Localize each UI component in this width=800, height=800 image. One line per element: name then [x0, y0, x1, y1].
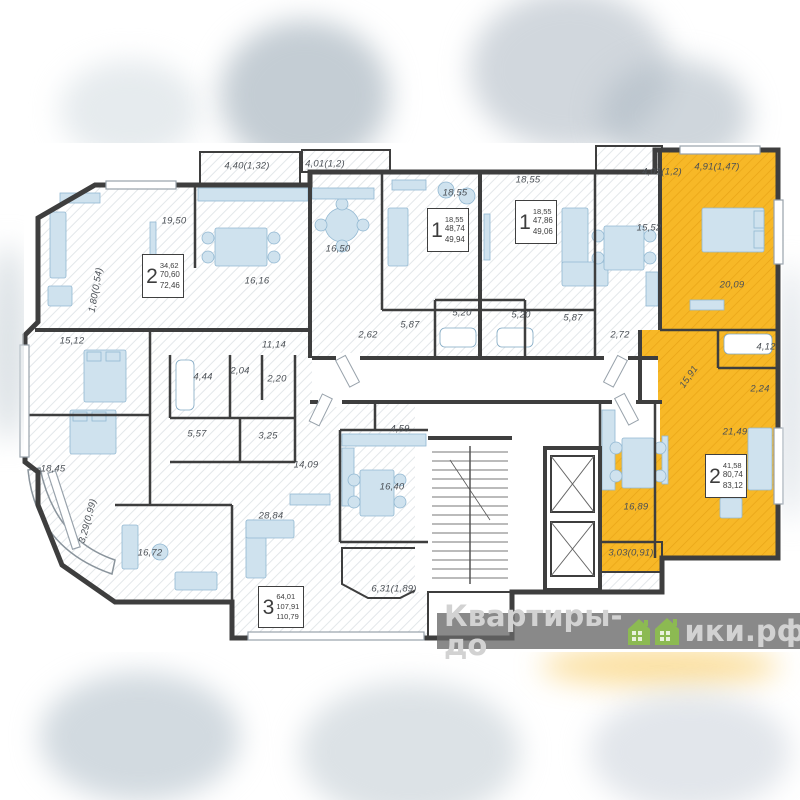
room-area-label: 2,20: [267, 374, 286, 385]
area-total: 110,79: [276, 612, 299, 622]
area-total: 83,12: [723, 481, 743, 491]
room-area-label: 28,84: [259, 511, 284, 522]
area-main: 80,74: [723, 470, 743, 480]
apartment-number: 2: [146, 266, 158, 287]
room-area-label: 15,52: [637, 223, 662, 234]
area-living: 18,55: [445, 215, 465, 225]
apartment-number: 2: [709, 466, 721, 487]
room-area-label: 5,20: [511, 310, 530, 321]
room-area-label: 2,72: [610, 330, 629, 341]
balcony-area-label: 4,01(1,2): [642, 167, 682, 178]
blurred-border-right: [782, 143, 800, 652]
room-area-label: 18,55: [443, 188, 468, 199]
area-main: 47,86: [533, 216, 553, 226]
room-area-label: 4,12: [756, 342, 775, 353]
room-area-label: 16,40: [380, 482, 405, 493]
room-area-label: 2,62: [358, 330, 377, 341]
area-living: 41,58: [723, 461, 743, 471]
apartment-info-2-left: 2 34,62 70,60 72,46: [142, 254, 184, 298]
watermark: Квартиры-до ики.рф: [437, 613, 800, 649]
room-area-label: 5,87: [563, 313, 582, 324]
balcony-area-label: 4,01(1,2): [305, 159, 345, 170]
apartment-info-3-bottom: 3 64,01 107,91 110,79: [258, 586, 304, 628]
room-area-label: 20,09: [720, 280, 745, 291]
balcony-area-label: 4,40(1,32): [224, 161, 269, 172]
balcony-area-label: 4,91(1,47): [694, 162, 739, 173]
balcony-area-label: 6,31(1,89): [371, 584, 416, 595]
balcony-area-label: 3,03(0,91): [608, 548, 653, 559]
room-area-label: 3,25: [258, 431, 277, 442]
area-total: 49,94: [445, 235, 465, 245]
apartment-number: 1: [431, 220, 443, 241]
floorplan-image: 19,50 16,16 4,40(1,32) 1,80(0,54) 16,50 …: [0, 0, 800, 800]
apartment-info-1-mid-right: 1 18,55 47,86 49,06: [515, 200, 557, 244]
area-main: 48,74: [445, 224, 465, 234]
room-area-label: 5,20: [452, 308, 471, 319]
room-area-label: 2,04: [230, 366, 249, 377]
apartment-number: 1: [519, 212, 531, 233]
area-living: 18,55: [533, 207, 553, 217]
watermark-text-after: ики.рф: [685, 617, 800, 646]
blurred-border-left: [0, 143, 24, 652]
apartment-info-1-mid-left: 1 18,55 48,74 49,94: [427, 208, 469, 252]
elevator-shafts: [545, 448, 600, 590]
room-area-label: 5,57: [187, 429, 206, 440]
blurred-border-top: [0, 0, 800, 143]
area-main: 107,91: [276, 602, 299, 612]
room-area-label: 18,45: [41, 464, 66, 475]
room-area-label: 14,09: [294, 460, 319, 471]
room-area-label: 2,24: [750, 384, 769, 395]
area-total: 49,06: [533, 227, 553, 237]
area-main: 70,60: [160, 270, 180, 280]
room-area-label: 15,12: [60, 336, 85, 347]
apartment-info-2-highlighted: 2 41,58 80,74 83,12: [705, 454, 747, 498]
watermark-houses-icon: [625, 616, 683, 646]
apartment-number: 3: [263, 597, 275, 618]
room-area-label: 21,49: [723, 427, 748, 438]
room-area-label: 4,59: [390, 424, 409, 435]
room-area-label: 16,50: [326, 244, 351, 255]
room-area-label: 19,50: [162, 216, 187, 227]
area-living: 64,01: [276, 592, 299, 602]
area-total: 72,46: [160, 281, 180, 291]
room-area-label: 5,87: [400, 320, 419, 331]
room-area-label: 16,72: [138, 548, 163, 559]
room-area-label: 16,89: [624, 502, 649, 513]
area-living: 34,62: [160, 261, 180, 271]
room-area-label: 18,55: [516, 175, 541, 186]
room-area-label: 4,44: [193, 372, 212, 383]
room-area-label: 11,14: [262, 340, 286, 351]
room-area-label: 16,16: [245, 276, 270, 287]
watermark-text-before: Квартиры-до: [444, 602, 623, 660]
blurred-border-bottom: [0, 652, 800, 800]
